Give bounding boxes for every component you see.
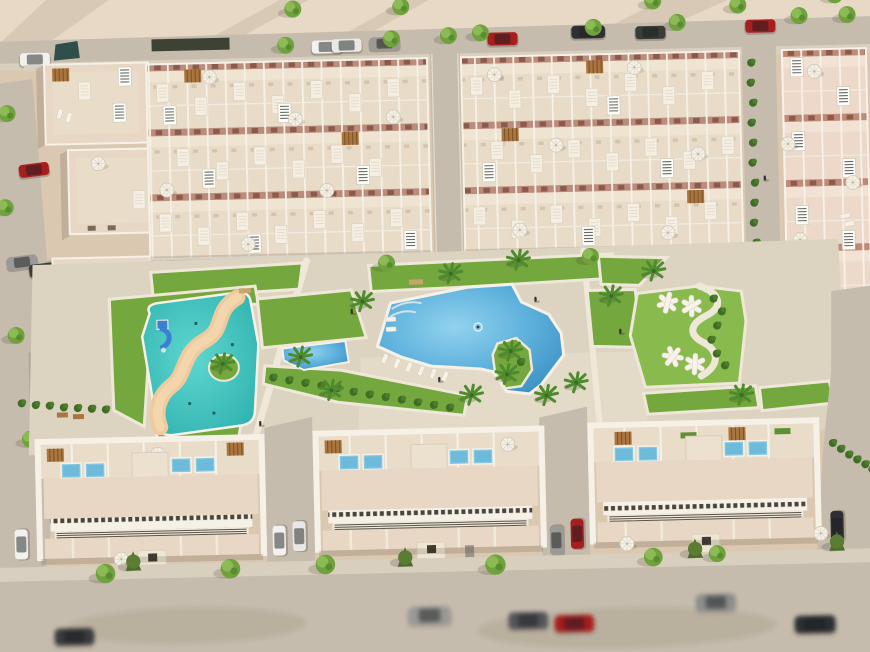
stair-bulkhead (236, 212, 248, 230)
stair-bulkhead (722, 136, 734, 154)
stair-bulkhead (198, 227, 210, 245)
stair-bulkhead (509, 90, 521, 108)
stair-bulkhead (216, 162, 228, 180)
stair-bulkhead (606, 153, 618, 171)
solar-skylight (404, 230, 417, 249)
bench (57, 412, 68, 417)
parked-car-red (570, 518, 586, 550)
stair-bulkhead (586, 88, 598, 106)
stair-bulkhead (349, 94, 361, 112)
solar-skylight (482, 163, 495, 182)
parked-car-dark (634, 26, 666, 42)
aerial-render (0, 0, 870, 652)
solar-skylight (842, 230, 855, 249)
bench (409, 279, 423, 284)
street-between-blocks-1 (430, 51, 465, 260)
car-grey (407, 606, 452, 628)
stair-bulkhead (645, 138, 657, 156)
rooftop-pool (171, 458, 191, 473)
stair-bulkhead (195, 97, 207, 115)
apartment-building-2 (312, 426, 547, 567)
rooftop-pool (195, 457, 215, 472)
solar-skylight (837, 87, 850, 106)
stair-bulkhead (254, 147, 266, 165)
pergola (614, 432, 631, 445)
in-water-lounger (386, 327, 396, 332)
stair-bulkhead (292, 160, 304, 178)
solar-skylight (795, 205, 808, 224)
solar-skylight (607, 96, 620, 115)
bench (239, 288, 251, 293)
stair-bulkhead (156, 84, 168, 102)
pergola (47, 448, 64, 461)
pergola (502, 128, 519, 141)
stair-bulkhead (547, 75, 559, 93)
solar-skylight (356, 165, 369, 184)
apartment-building-1 (34, 434, 267, 575)
playground-lawn (629, 285, 747, 388)
stair-bulkhead (352, 224, 364, 242)
stair-bulkhead (473, 207, 485, 225)
pergola (52, 68, 69, 81)
pergola (184, 69, 201, 82)
solar-skylight (790, 58, 803, 77)
solar-skylight (202, 169, 215, 188)
end-house (36, 62, 150, 149)
car-red (553, 614, 595, 634)
solar-skylight (113, 103, 126, 122)
stair-bulkhead (704, 202, 716, 220)
car-dark (793, 615, 837, 636)
stair-bulkhead (387, 79, 399, 97)
rooftop-pool (614, 447, 634, 462)
parked-car-white (292, 520, 308, 552)
stair-bulkhead (624, 73, 636, 91)
main-roof (321, 466, 538, 511)
scene-tilted (0, 0, 870, 652)
dark-material-stack (151, 38, 229, 52)
stair-bulkhead (627, 203, 639, 221)
stair-bulkhead (470, 77, 482, 95)
bench (73, 414, 84, 419)
rooftop-pool (339, 455, 359, 470)
parked-car-red (486, 32, 518, 48)
stair-bulkhead (275, 225, 287, 243)
rooftop-pool (61, 463, 81, 478)
pergola (227, 442, 244, 455)
pergola (586, 60, 603, 73)
pergola (728, 427, 745, 440)
parked-car-grey (550, 524, 566, 556)
stair-bulkhead (313, 210, 325, 228)
stair-bulkhead (310, 80, 322, 98)
rooftop-pool (724, 441, 744, 456)
stair-bulkhead (177, 149, 189, 167)
window (88, 226, 96, 231)
road-surface (742, 42, 781, 253)
stair-bulkhead (491, 141, 503, 159)
solar-skylight (118, 67, 131, 86)
solar-skylight (660, 159, 673, 178)
townhouse-block-a (146, 58, 431, 261)
pergola (342, 132, 359, 145)
solar-skylight (582, 226, 595, 245)
stair-bulkhead (369, 158, 381, 176)
render-canvas (0, 0, 870, 652)
parked-car-white (14, 528, 30, 560)
main-roof (596, 457, 813, 502)
stair-bulkhead (133, 191, 145, 209)
kids-splash-pool (141, 292, 260, 436)
planter (774, 428, 790, 434)
pergola (325, 440, 342, 453)
stair-bulkhead (159, 214, 171, 232)
pergola (687, 190, 704, 203)
car-grey (695, 593, 737, 613)
townhouse-block-b (461, 51, 743, 254)
car-dark (53, 628, 95, 648)
parked-car-white (330, 39, 362, 55)
main-roof (43, 474, 258, 519)
in-water-lounger (386, 317, 396, 322)
road-surface (430, 51, 465, 260)
car-dark (507, 611, 549, 631)
stair-bulkhead (568, 140, 580, 158)
stair-bulkhead (233, 82, 245, 100)
solar-skylight (842, 158, 855, 177)
stair-bulkhead (663, 87, 675, 105)
rooftop-pool (473, 449, 493, 464)
parked-car-red (744, 19, 776, 35)
rooftop-pool (748, 440, 768, 455)
parked-car-white (272, 524, 288, 556)
street-between-blocks-2 (742, 42, 781, 253)
stair-bulkhead (701, 72, 713, 90)
rooftop-pool (638, 446, 658, 461)
stair-bulkhead (530, 155, 542, 173)
stair-bulkhead (331, 145, 343, 163)
solar-skylight (163, 106, 176, 125)
apartment-building-3 (587, 417, 831, 558)
stair-bulkhead (78, 82, 90, 100)
rooftop-pool (85, 463, 105, 478)
rooftop-pool (363, 454, 383, 469)
stair-bulkhead (550, 205, 562, 223)
stair-bulkhead (390, 209, 402, 227)
rooftop-pool (449, 449, 469, 464)
window (108, 225, 116, 230)
